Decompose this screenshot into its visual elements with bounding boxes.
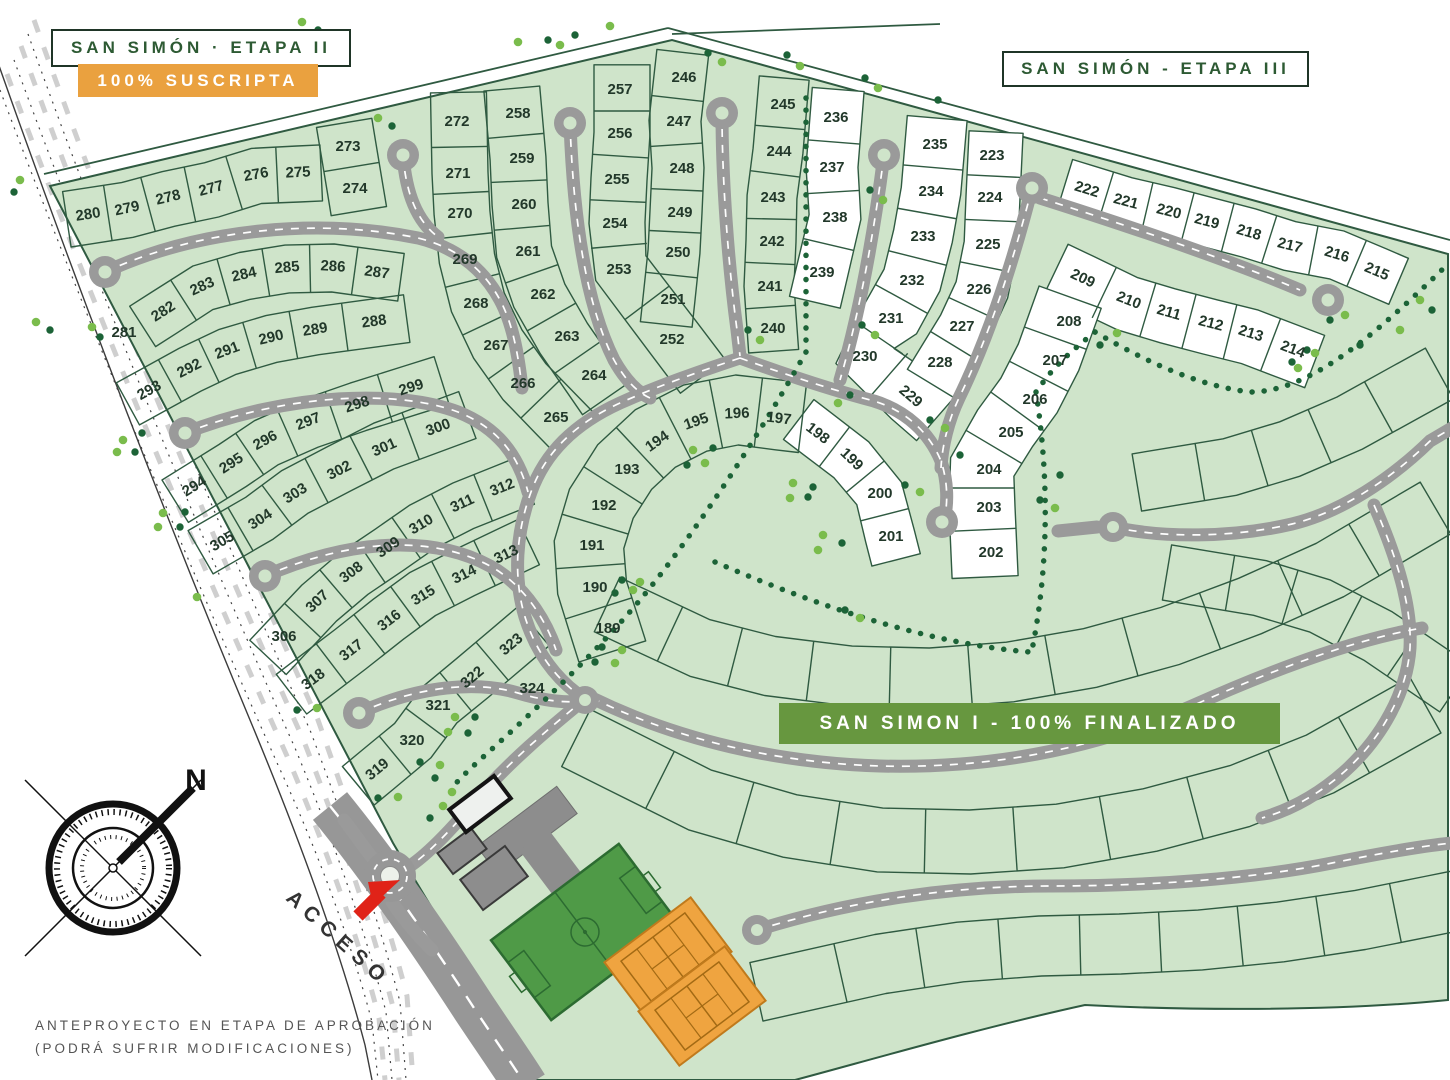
lot-label-255: 255 <box>604 171 629 188</box>
lot-label-244: 244 <box>766 143 792 160</box>
disclaimer-line-1: ANTEPROYECTO EN ETAPA DE APROBACIÓN <box>35 1014 435 1037</box>
lot-label-192: 192 <box>591 497 616 514</box>
lot-label-260: 260 <box>511 196 536 213</box>
lot-label-233: 233 <box>910 228 935 245</box>
lot-label-281: 281 <box>111 324 136 341</box>
lot-label-249: 249 <box>667 204 692 221</box>
etapa2-title-box: SAN SIMÓN · ETAPA II <box>51 29 351 67</box>
lot-label-208: 208 <box>1056 313 1081 330</box>
lot-label-265: 265 <box>543 409 568 426</box>
lot-label-224: 224 <box>977 189 1003 206</box>
lot-label-266: 266 <box>510 375 535 392</box>
lot-label-247: 247 <box>666 113 691 130</box>
lot-label-241: 241 <box>757 278 782 295</box>
lot-label-268: 268 <box>463 295 488 312</box>
lot-label-272: 272 <box>444 113 469 130</box>
lot-label-223: 223 <box>979 147 1004 164</box>
lot-label-254: 254 <box>602 215 628 232</box>
map-canvas: N 18919019119219319419519619719819920020… <box>0 0 1450 1080</box>
lot-label-236: 236 <box>823 109 848 126</box>
lot-label-306: 306 <box>271 628 296 645</box>
approval-disclaimer: ANTEPROYECTO EN ETAPA DE APROBACIÓN (POD… <box>35 1014 435 1060</box>
lot-label-201: 201 <box>878 528 903 545</box>
lot-label-273: 273 <box>335 138 360 155</box>
lot-label-232: 232 <box>899 272 924 289</box>
lot-label-320: 320 <box>399 732 424 749</box>
lot-label-240: 240 <box>760 320 785 337</box>
lot-label-245: 245 <box>770 96 795 113</box>
lot-label-243: 243 <box>760 189 785 206</box>
lot-label-256: 256 <box>607 125 632 142</box>
lot-label-252: 252 <box>659 331 684 348</box>
lot-label-206: 206 <box>1022 391 1047 408</box>
lot-label-258: 258 <box>505 105 530 122</box>
lot-label-189: 189 <box>595 620 620 637</box>
etapa3-title-box: SAN SIMÓN - ETAPA III <box>1002 51 1309 87</box>
lot-label-321: 321 <box>425 697 450 714</box>
lot-label-204: 204 <box>976 461 1002 478</box>
north-label: N <box>185 764 207 797</box>
lot-label-235: 235 <box>922 136 947 153</box>
lot-label-285: 285 <box>274 258 300 277</box>
lot-label-226: 226 <box>966 281 991 298</box>
disclaimer-line-2: (PODRÁ SUFRIR MODIFICACIONES) <box>35 1037 435 1060</box>
lot-label-248: 248 <box>669 160 694 177</box>
etapa3-title: SAN SIMÓN - ETAPA III <box>1021 59 1290 79</box>
lot-label-239: 239 <box>809 264 834 281</box>
lot-label-267: 267 <box>483 337 508 354</box>
etapa2-status: 100% SUSCRIPTA <box>97 71 298 91</box>
lot-label-200: 200 <box>867 485 892 502</box>
lot-label-207: 207 <box>1042 352 1067 369</box>
san-simon-1-banner: SAN SIMON I - 100% FINALIZADO <box>779 703 1280 744</box>
lot-label-230: 230 <box>852 348 877 365</box>
lot-label-259: 259 <box>509 150 534 167</box>
san-simon-1-banner-text: SAN SIMON I - 100% FINALIZADO <box>819 713 1239 735</box>
lot-label-261: 261 <box>515 243 540 260</box>
lot-label-263: 263 <box>554 328 579 345</box>
lot-label-286: 286 <box>320 257 346 275</box>
lot-label-234: 234 <box>918 183 944 200</box>
lot-label-191: 191 <box>579 537 604 554</box>
lot-label-197: 197 <box>766 409 793 429</box>
lot-label-287: 287 <box>363 262 390 282</box>
site-plan-map: N 18919019119219319419519619719819920020… <box>0 0 1450 1080</box>
lot-label-237: 237 <box>819 159 844 176</box>
lot-label-228: 228 <box>927 354 952 371</box>
lot-label-324: 324 <box>519 680 545 697</box>
lot-label-227: 227 <box>949 318 974 335</box>
lot-label-253: 253 <box>606 261 631 278</box>
lot-label-196: 196 <box>724 405 750 423</box>
lot-label-274: 274 <box>342 180 368 197</box>
lot-label-271: 271 <box>445 165 470 182</box>
lot-label-203: 203 <box>976 499 1001 516</box>
lot-label-190: 190 <box>582 579 607 596</box>
lot-label-238: 238 <box>822 209 847 226</box>
lot-label-257: 257 <box>607 81 632 98</box>
lot-label-251: 251 <box>660 291 685 308</box>
lot-label-242: 242 <box>759 233 784 250</box>
etapa2-status-badge: 100% SUSCRIPTA <box>78 64 318 97</box>
lot-label-269: 269 <box>452 251 477 268</box>
compass-icon: N <box>25 764 207 956</box>
etapa2-title: SAN SIMÓN · ETAPA II <box>71 38 331 58</box>
lot-label-205: 205 <box>998 424 1023 441</box>
lot-label-246: 246 <box>671 69 696 86</box>
lot-label-288: 288 <box>361 311 388 331</box>
lot-label-250: 250 <box>665 244 690 261</box>
lot-label-202: 202 <box>978 544 1003 561</box>
lot-label-231: 231 <box>878 310 903 327</box>
lot-label-275: 275 <box>285 163 311 181</box>
lot-label-262: 262 <box>530 286 555 303</box>
lot-label-270: 270 <box>447 205 472 222</box>
lot-label-225: 225 <box>975 236 1000 253</box>
lot-label-193: 193 <box>614 461 639 478</box>
lot-label-264: 264 <box>581 367 607 384</box>
